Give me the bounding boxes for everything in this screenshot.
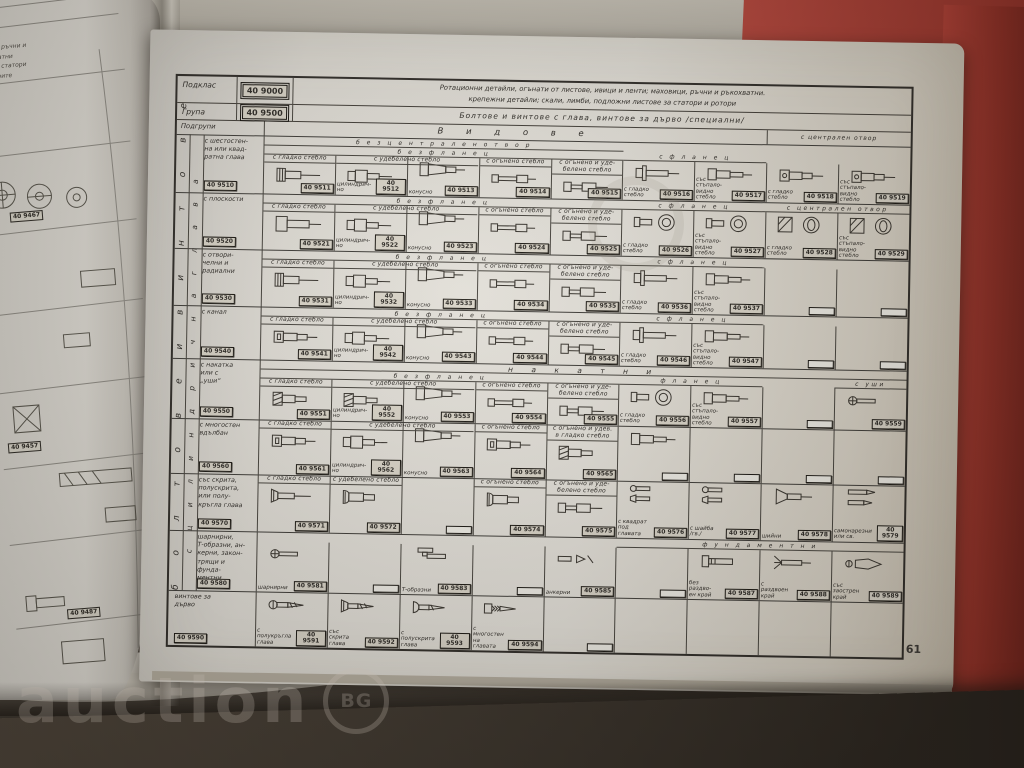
code-box: 40 9541 (298, 349, 331, 360)
watermark-badge-icon: BG (323, 668, 389, 734)
catalog-cell: с гладко стебло40 9551 (260, 378, 332, 420)
empty-code-box (587, 643, 613, 651)
cell-footer: с гладко стебло40 9528 (767, 245, 836, 259)
catalog-cell: с гладко стебло40 9511 (264, 154, 336, 194)
catalog-cell: Т-образни40 9583 (399, 544, 472, 595)
part-drawing-icon (481, 272, 545, 295)
code-box: 40 9589 (869, 591, 902, 602)
cell-footer: със стъпало- видно стебло40 9519 (840, 177, 909, 203)
cell-label: със стъпало- видно стебло (839, 235, 870, 259)
code-box: 40 9532 (374, 291, 404, 308)
code-box: 40 9531 (298, 296, 331, 307)
code-box: 40 9572 (366, 522, 399, 533)
cell-footer: 40 9572 (331, 522, 400, 533)
cell-footer: 40 9551 (261, 408, 330, 419)
cell-footer: шийни40 9578 (762, 529, 831, 540)
cell-footer: конусно40 9533 (406, 298, 475, 309)
catalog-cell: с огънено стебло40 9564 (473, 424, 546, 479)
code-box: 40 9578 (798, 530, 831, 541)
cell-footer: със стъпало- видно стебло40 9557 (692, 401, 761, 427)
column-header: с огънено стебло (480, 158, 551, 167)
part-drawing-icon (266, 268, 330, 291)
code-box: 40 9564 (511, 468, 544, 479)
part-drawing-icon (261, 542, 325, 565)
catalog-cell: с гладко стебло40 9528 (765, 212, 838, 259)
catalog-cell: с полускрита глава40 9593 (399, 595, 472, 650)
column-header: с огънено стебло (479, 207, 550, 216)
code-box: 40 9540 (201, 346, 234, 357)
part-drawing-icon (622, 428, 686, 451)
catalog-cell: с квадрат под главата40 9576 (616, 482, 689, 539)
cell-label: със стъпало- видно стебло (696, 177, 727, 201)
cell-footer: 40 9575 (546, 525, 615, 536)
cell-footer (403, 525, 472, 534)
part-drawing-icon (335, 431, 399, 454)
catalog-cell: шийни40 9578 (760, 484, 833, 541)
part-drawing-icon (839, 390, 903, 413)
cell-label: с полукръгла глава (257, 628, 292, 646)
catalog-cell (835, 326, 908, 370)
column-header: с гладко стебло (259, 475, 330, 484)
cell-footer: 40 9564 (475, 467, 544, 478)
part-drawing-icon (623, 386, 687, 409)
cell-footer: 40 9524 (479, 242, 548, 253)
cell-label: конусно (404, 470, 435, 476)
empty-code-box (445, 526, 471, 534)
row-label-text: шарнирни, Т-образни, ан- керни, закон- т… (197, 533, 255, 583)
column-header: с огънено и уде- белено стебло (549, 321, 620, 337)
catalog-cell (686, 600, 759, 655)
cell-footer: цилиндрич- но40 9562 (332, 459, 401, 476)
part-drawing-icon (478, 433, 542, 456)
code-box: 40 9580 (197, 578, 230, 589)
classification-table: Подклас 40 9000 Ротационни детайли, огън… (166, 74, 914, 660)
part-drawing-icon (263, 387, 327, 410)
catalog-cell: с гладко стебло40 9546 (619, 323, 692, 367)
row-body: с полукръгла глава40 9591със скрита глав… (256, 592, 903, 657)
code-box: 40 9577 (726, 529, 759, 540)
cell-footer: конусно40 9563 (404, 466, 473, 477)
cell-footer: със стъпало- видно стебло40 9529 (839, 233, 908, 259)
column-header: с огънено стебло (476, 382, 547, 391)
code-box: 40 9560 (199, 461, 232, 472)
code-box: 40 9500 (242, 106, 286, 120)
cell-footer: с полускрита глава40 9593 (401, 629, 470, 649)
catalog-cell: със стъпало- видно стебло40 9519 (838, 165, 911, 205)
column-header: с гладко стебло (262, 259, 333, 268)
cell-footer (330, 584, 399, 593)
catalog-cell (328, 543, 401, 594)
catalog-cell (758, 601, 831, 656)
cell-footer: анкерни40 9585 (545, 585, 614, 596)
cell-label: анкерни (545, 590, 576, 596)
row-label-text: с плоскости (203, 195, 260, 204)
catalog-cell: анкерни40 9585 (543, 546, 616, 597)
cell-footer: 40 9511 (265, 182, 334, 193)
code-box: 40 9519 (875, 193, 908, 204)
cell-label: конусно (406, 302, 437, 308)
part-drawing-icon (334, 486, 398, 509)
code-box: 40 9529 (875, 249, 908, 260)
part-drawing-icon (480, 329, 544, 352)
cell-footer (619, 472, 688, 481)
cell-label: шарнирни (258, 585, 289, 591)
empty-code-box (373, 584, 399, 592)
catalog-cell: с удебелено стеблоцилиндрич- но40 9512 (335, 156, 408, 196)
part-drawing-icon (764, 551, 828, 574)
row-label-text: със скрита, полускрита, или полу- кръгла… (198, 476, 256, 510)
column-header: с огънено и удев. в гладко стебло (547, 425, 618, 441)
catalog-cell: със стъпало- видно стебло40 9527 (693, 211, 766, 258)
watermark-stamp-icon (588, 176, 684, 272)
part-drawing-icon (693, 484, 757, 507)
group-code-cell: 40 9500 (237, 104, 293, 121)
code-box: 40 9552 (372, 404, 402, 421)
catalog-page: Подклас 40 9000 Ротационни детайли, огън… (139, 29, 964, 695)
part-drawing-icon (337, 270, 401, 293)
book-photo: ховици, ръчни и ръкохватни тове за стато… (0, 0, 1024, 768)
cell-label: с раздвоен край (761, 582, 792, 600)
code-box: 40 9570 (198, 518, 231, 529)
cell-label: със стъпало- видно стебло (693, 343, 724, 367)
catalog-cell: с раздвоен край40 9588 (759, 550, 832, 601)
code-box: 40 9575 (582, 526, 615, 537)
empty-code-box (807, 420, 833, 428)
catalog-cell: с удебелено стеблоцилиндрич- но40 9562 (330, 422, 403, 477)
code-box: 40 9513 (444, 186, 477, 197)
part-drawing-icon (262, 484, 326, 507)
cell-footer: с гладко стебло40 9518 (768, 189, 837, 203)
cell-footer: 40 9561 (260, 463, 329, 474)
cell-label: с гладко стебло (767, 246, 798, 258)
cell-label: конусно (408, 189, 439, 195)
code-box: 40 9523 (443, 242, 476, 253)
code-box: 40 9524 (515, 243, 548, 254)
catalog-cell: със стъпало- видно стебло40 9557 (690, 386, 763, 428)
catalog-cell: с огънено и уде- белено стебло40 9535 (548, 264, 621, 312)
code-box: 40 9561 (296, 464, 329, 475)
part-drawing-icon (405, 545, 469, 568)
column-header: с гладко стебло (264, 154, 335, 163)
code-box: 40 9562 (371, 459, 401, 476)
cell-footer: с гладко стебло40 9546 (621, 352, 690, 366)
cell-footer (617, 589, 686, 598)
catalog-cell: с огънено стебло40 9514 (478, 158, 551, 198)
cell-footer: с гладко стебло40 9556 (620, 412, 689, 426)
code-box: 40 9576 (654, 527, 687, 538)
cell-label: със заострен край (833, 583, 864, 601)
cell-label: с гладко стебло (622, 300, 653, 312)
column-header: с огънено и уде- белено стебло (548, 383, 619, 399)
empty-code-box (662, 472, 688, 480)
code-box: 40 9530 (202, 293, 235, 304)
empty-code-box (806, 475, 832, 483)
code-box: 40 9593 (439, 633, 469, 650)
code-box: 40 9594 (508, 640, 541, 651)
part-drawing-icon (482, 216, 546, 239)
code-box: 40 9533 (442, 299, 475, 310)
row-label-text: с шестостен- на или квад- ратна глава (204, 137, 261, 163)
catalog-cell: с удебелено стеблоцилиндрич- но40 9552 (331, 380, 404, 422)
cell-footer: с раздвоен край40 9588 (761, 580, 830, 600)
code-box: 40 9563 (439, 467, 472, 478)
code-box: 40 9553 (440, 412, 473, 423)
cell-footer: 40 9555 (548, 413, 617, 424)
code-box: 40 9547 (729, 357, 762, 368)
cell-label: със стъпало- видно стебло (692, 403, 723, 427)
code-box: 40 9517 (732, 191, 765, 202)
cell-footer: 40 9535 (550, 301, 619, 312)
row-label-text: с многостен вдълбан (199, 421, 256, 438)
code-box: 40 9557 (728, 417, 761, 428)
cell-label: със скрита глава (329, 629, 360, 647)
cell-footer: 40 9541 (262, 348, 331, 359)
catalog-cell: с гладко стебло40 9531 (262, 259, 334, 307)
code-box: 40 9579 (877, 525, 903, 541)
part-drawing-icon (550, 441, 614, 464)
catalog-cell: с огънено стебло40 9544 (475, 320, 548, 364)
cell-footer (766, 306, 835, 315)
catalog-cell (614, 599, 687, 654)
cell-label: с гладко стебло (620, 413, 651, 425)
cell-footer: цилиндрич- но40 9532 (335, 291, 404, 308)
catalog-cell: със скрита глава40 9592 (327, 594, 400, 649)
catalog-cell (542, 597, 615, 652)
catalog-cell: с гладко стебло40 9536 (620, 266, 693, 314)
catalog-cell (401, 478, 474, 535)
column-header: с гладко стебло (260, 420, 331, 429)
catalog-cell: с огънено стебло40 9574 (472, 479, 545, 536)
part-drawing-icon (621, 483, 685, 506)
cell-footer: с квадрат под главата40 9576 (618, 518, 687, 538)
catalog-cell: с огънено и удев. в гладко стебло40 9565 (545, 425, 618, 480)
cell-footer: със заострен край40 9589 (833, 582, 902, 602)
cell-footer: със стъпало- видно стебло40 9537 (694, 288, 763, 314)
code-box: 40 9543 (441, 352, 474, 363)
cell-footer: конусно40 9523 (407, 241, 476, 252)
column-header: с огънено и уде- белено стебло (546, 480, 617, 496)
code-box: 40 9537 (730, 304, 763, 315)
empty-code-box (878, 476, 904, 484)
column-header: с удебелено стебло (331, 477, 402, 486)
catalog-cell: с полукръгла глава40 9591 (256, 592, 328, 647)
cell-label: с гладко стебло (621, 353, 652, 365)
column-header: с гладко стебло (261, 316, 332, 325)
catalog-cell: с гладко стебло40 9561 (259, 420, 331, 475)
cell-footer (763, 474, 832, 483)
code-box: 40 9514 (516, 187, 549, 198)
code-box: 40 9545 (585, 354, 618, 365)
code-box: 40 9571 (295, 521, 328, 532)
catalog-cell: с удебелено стеблоцилиндрич- но40 9522 (334, 205, 407, 252)
subgroups-label: Подгрупи (177, 120, 265, 136)
cell-footer (765, 359, 834, 368)
cell-footer (838, 308, 907, 317)
cell-footer (764, 419, 833, 428)
code-box: 40 9546 (657, 355, 690, 366)
code-box: 40 9590 (174, 633, 207, 644)
cell-label: цилиндрич- но (332, 463, 366, 475)
part-drawing-icon (477, 488, 541, 511)
code-box: 40 9583 (437, 584, 470, 595)
catalog-cell: с удебелено стеблоцилиндрич- но40 9542 (332, 318, 405, 362)
code-box: 40 9544 (513, 353, 546, 364)
left-page: ховици, ръчни и ръкохватни тове за стато… (0, 0, 160, 700)
catalog-cell (833, 430, 906, 485)
cell-label: Т-образни (402, 587, 433, 593)
cell-footer: цилиндрич- но40 9512 (337, 178, 406, 195)
catalog-row: винтове за дърво40 9590с полукръгла глав… (168, 590, 903, 658)
empty-code-box (516, 587, 542, 595)
cell-label: без раздво- ен край (689, 581, 720, 599)
cell-footer: 40 9554 (476, 412, 545, 423)
part-drawing-icon (332, 595, 396, 618)
catalog-cell (617, 427, 690, 482)
code-box: 40 9542 (373, 344, 403, 361)
code-box: 40 9581 (293, 581, 326, 592)
cell-footer (473, 586, 542, 595)
catalog-cell: с гладко стебло40 9521 (263, 203, 335, 250)
code-box: 40 9554 (512, 413, 545, 424)
column-header: с огънено стебло (474, 479, 545, 488)
catalog-cell: с огънено и уде- белено стебло40 9575 (544, 480, 617, 537)
row-label-text: винтове за дърво (174, 593, 253, 611)
code-box: 40 9534 (514, 300, 547, 311)
catalog-cell: с гладко стебло40 9541 (261, 316, 333, 360)
code-box: 40 9556 (656, 415, 689, 426)
code-box: 40 9555 (584, 414, 617, 425)
catalog-cell: с гладко стебло40 9556 (618, 385, 691, 427)
cell-footer: със стъпало- видно стебло40 9527 (695, 231, 764, 257)
catalog-cell: без раздво- ен край40 9587 (687, 549, 760, 600)
empty-code-box (881, 308, 907, 316)
empty-code-box (880, 361, 906, 369)
catalog-cell (830, 602, 903, 657)
cell-label: с многостен на главата (472, 626, 503, 650)
code-box: 40 9591 (296, 630, 326, 647)
catalog-cell (763, 325, 836, 369)
cell-footer: със стъпало- видно стебло40 9517 (696, 175, 765, 201)
left-page-text: ховици, ръчни и ръкохватни тове за стато… (0, 41, 30, 93)
catalog-body: с шестостен- на или квад- ратна глава40 … (168, 134, 911, 658)
column-header: с гладко стебло (263, 203, 334, 212)
cell-footer: конусно40 9543 (406, 351, 475, 362)
part-drawing-icon (771, 164, 835, 187)
cell-footer: с шайба /гв./40 9577 (690, 525, 759, 539)
cell-label: със стъпало- видно стебло (694, 290, 725, 314)
part-drawing-icon (770, 213, 834, 236)
code-box: 40 9512 (376, 178, 406, 195)
cell-footer: с гладко стебло40 9536 (622, 299, 691, 313)
cell-row: с полукръгла глава40 9591със скрита глав… (256, 592, 903, 657)
column-header: с огънено и уде- белено стебло (552, 160, 623, 176)
catalog-cell (764, 268, 837, 316)
catalog-cell (836, 269, 909, 317)
code-box: 40 9520 (203, 236, 236, 247)
cell-footer: 40 9565 (547, 468, 616, 479)
code-box: 40 9550 (200, 406, 233, 417)
cell-label: цилиндрич- но (337, 182, 371, 194)
code-box: 40 9518 (804, 192, 837, 203)
cell-label: с квадрат под главата (618, 519, 649, 537)
cell-label: цилиндрич- но (333, 408, 367, 420)
catalog-cell: с удебелено стеблоцилиндрич- но40 9532 (333, 261, 406, 309)
left-page-table-fragment (0, 0, 160, 697)
code-box: 40 9522 (375, 234, 405, 251)
page-number: 61 (906, 643, 922, 656)
code-box: 40 9535 (586, 301, 619, 312)
catalog-cell: със стъпало- видно стебло40 9517 (694, 162, 767, 202)
cell-footer: 40 9521 (264, 238, 333, 249)
cell-label: цилиндрич- но (334, 348, 368, 360)
cell-label: самонарезни или св. (834, 529, 872, 541)
empty-code-box (808, 360, 834, 368)
part-drawing-icon (765, 485, 829, 508)
code-box: 40 9565 (583, 469, 616, 480)
column-header: с огънено стебло (475, 424, 546, 433)
column-header: с огънено стебло (478, 263, 549, 272)
catalog-cell: със стъпало- видно стебло40 9537 (692, 267, 765, 315)
code-box: 40 9536 (658, 302, 691, 313)
cell-footer: със скрита глава40 9592 (329, 628, 398, 648)
row-label-text: с канал (202, 308, 259, 317)
code-box: 40 9521 (299, 239, 332, 250)
catalog-cell: с огънено и уде- белено стебло40 9555 (546, 383, 619, 425)
cell-footer: 40 9545 (549, 353, 618, 364)
catalog-cell: с гладко стебло40 9571 (258, 475, 330, 532)
catalog-cell: шарнирни40 9581 (257, 541, 329, 592)
cell-footer: 40 9514 (480, 186, 549, 197)
cell-footer (691, 473, 760, 482)
empty-code-box (660, 589, 686, 597)
empty-code-box (734, 474, 760, 482)
row-label: винтове за дърво40 9590 (168, 591, 257, 647)
code-box: 40 9000 (243, 84, 287, 98)
code-box: 40 9585 (581, 586, 614, 597)
code-box: 40 9528 (803, 248, 836, 259)
part-drawing-icon (479, 391, 543, 414)
cell-label: с гладко стебло (768, 190, 799, 202)
catalog-cell (689, 428, 762, 483)
cell-label: със стъпало- видно стебло (840, 179, 871, 203)
row-label-text: с накатка или с „уши“ (200, 361, 257, 387)
cell-footer: цилиндрич- но40 9542 (334, 344, 403, 361)
cell-footer: конусно40 9513 (408, 185, 477, 196)
part-drawing-icon (836, 553, 900, 576)
cell-footer: 40 9574 (474, 524, 543, 535)
part-drawing-icon (624, 324, 688, 347)
part-drawing-icon (260, 593, 324, 616)
cell-footer: с полукръгла глава40 9591 (257, 627, 326, 647)
cell-label: със стъпало- видно стебло (695, 233, 726, 257)
cell-footer: 40 9534 (478, 299, 547, 310)
watermark-text: auction (16, 664, 311, 737)
cell-label: с полускрита глава (401, 631, 435, 649)
code-box: 40 9588 (797, 590, 830, 601)
code-box: 40 9587 (725, 589, 758, 600)
cell-footer: без раздво- ен край40 9587 (689, 579, 758, 599)
catalog-cell (761, 429, 834, 484)
catalog-cell (471, 545, 544, 596)
cell-label: конусно (407, 245, 438, 251)
part-drawing-icon (837, 487, 901, 510)
cell-label: конусно (406, 355, 437, 361)
cell-footer: 40 9531 (263, 295, 332, 306)
catalog-cell: със заострен край40 9589 (831, 551, 904, 602)
part-drawing-icon (548, 548, 612, 571)
cell-footer: 40 9559 (836, 419, 905, 430)
catalog-cell: със стъпало- видно стебло40 9547 (691, 324, 764, 368)
